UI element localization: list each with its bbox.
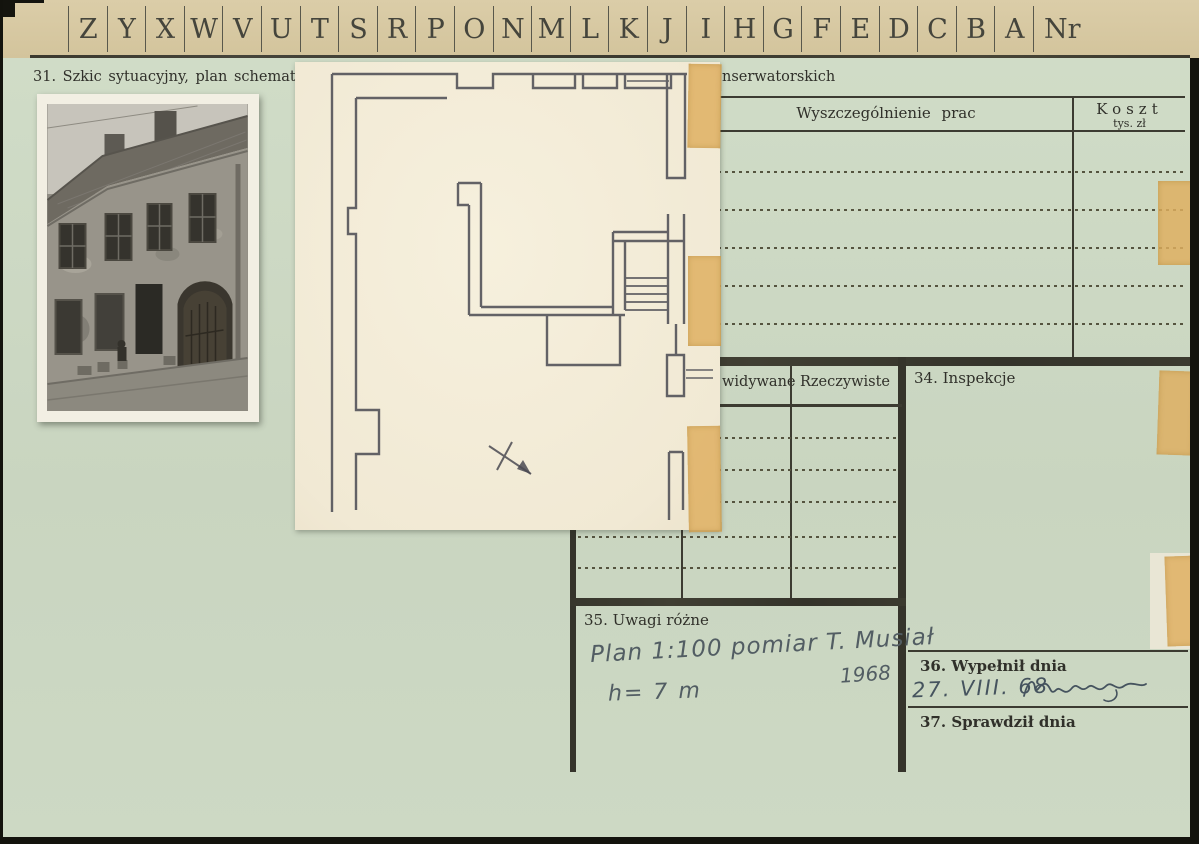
floor-plan-drawing	[295, 62, 720, 530]
tab-letter-F: F	[801, 6, 841, 52]
progress-header-expected-fragment: widywane	[722, 374, 796, 390]
tab-letter-C: C	[917, 6, 957, 52]
works-table-header-cost: Koszt	[1074, 100, 1185, 118]
remark-handwriting-line2: h= 7 m	[608, 678, 703, 706]
tab-letter-D: D	[879, 6, 919, 52]
signature-scribble	[1020, 672, 1150, 706]
tab-letter-J: J	[647, 6, 687, 52]
inspections-divider-bar	[898, 357, 906, 772]
building-photograph	[47, 104, 248, 411]
progress-table-bottom-band	[570, 598, 906, 606]
tab-letter-L: L	[570, 6, 610, 52]
scan-bottom-edge	[0, 837, 1199, 844]
building-photo-drawing	[47, 104, 248, 411]
progress-row-line	[578, 536, 896, 538]
tab-letter-Y: Y	[107, 6, 147, 52]
tab-letter-P: P	[415, 6, 455, 52]
progress-header-actual: Rzeczywiste	[792, 374, 898, 390]
tape-strip	[688, 256, 721, 346]
tab-letter-N: N	[493, 6, 533, 52]
tab-letter-K: K	[608, 6, 648, 52]
tab-letter-A: A	[994, 6, 1034, 52]
tab-letter-U: U	[261, 6, 301, 52]
tab-letter-R: R	[377, 6, 417, 52]
tab-letter-B: B	[956, 6, 996, 52]
section32-fragment: nserwatorskich	[722, 69, 835, 85]
north-arrow-head	[517, 460, 531, 474]
tab-letter-W: W	[184, 6, 224, 52]
progress-col-divider-2	[790, 366, 792, 606]
section36-top-line	[908, 650, 1188, 652]
tab-letter-V: V	[222, 6, 262, 52]
section35-label: 35. Uwagi różne	[584, 611, 709, 629]
photo-mount	[37, 94, 259, 422]
floor-plan-paper	[295, 62, 720, 530]
tab-letter-O: O	[454, 6, 494, 52]
works-table-cost-divider	[1072, 96, 1074, 359]
tape-strip	[687, 64, 721, 149]
tab-nr-label: Nr	[1044, 14, 1081, 45]
tab-letter-X: X	[145, 6, 185, 52]
tab-letter-M: M	[531, 6, 571, 52]
scan-right-edge	[1190, 58, 1199, 844]
tab-letter-E: E	[840, 6, 880, 52]
alphabet-tab-strip: ZYXWVUTSRPONMLKJIHGFEDCBA	[0, 0, 1199, 58]
works-table-header-works: Wyszczególnienie prac	[700, 104, 1072, 122]
tape-strip	[687, 426, 722, 533]
tab-letter-Z: Z	[68, 6, 108, 52]
archive-card-scan: ZYXWVUTSRPONMLKJIHGFEDCBA Nr 31. Szkic s…	[0, 0, 1199, 844]
tab-letter-G: G	[763, 6, 803, 52]
scan-top-edge	[0, 0, 44, 3]
tab-letter-H: H	[724, 6, 764, 52]
progress-row-line	[578, 567, 896, 569]
tab-letter-S: S	[338, 6, 378, 52]
tab-letter-T: T	[300, 6, 340, 52]
scan-left-edge	[0, 0, 3, 844]
section34-label: 34. Inspekcje	[914, 369, 1015, 387]
works-table-header-cost-unit: tys. zł	[1074, 117, 1185, 130]
tab-letter-I: I	[686, 6, 726, 52]
remark-handwriting-year: 1968	[839, 660, 891, 687]
section31-label: 31. Szkic sytuacyjny, plan schematyczn	[33, 69, 329, 85]
tab-nr: Nr	[1033, 6, 1124, 52]
section37-label: 37. Sprawdził dnia	[920, 713, 1076, 731]
section37-top-line	[908, 706, 1188, 708]
